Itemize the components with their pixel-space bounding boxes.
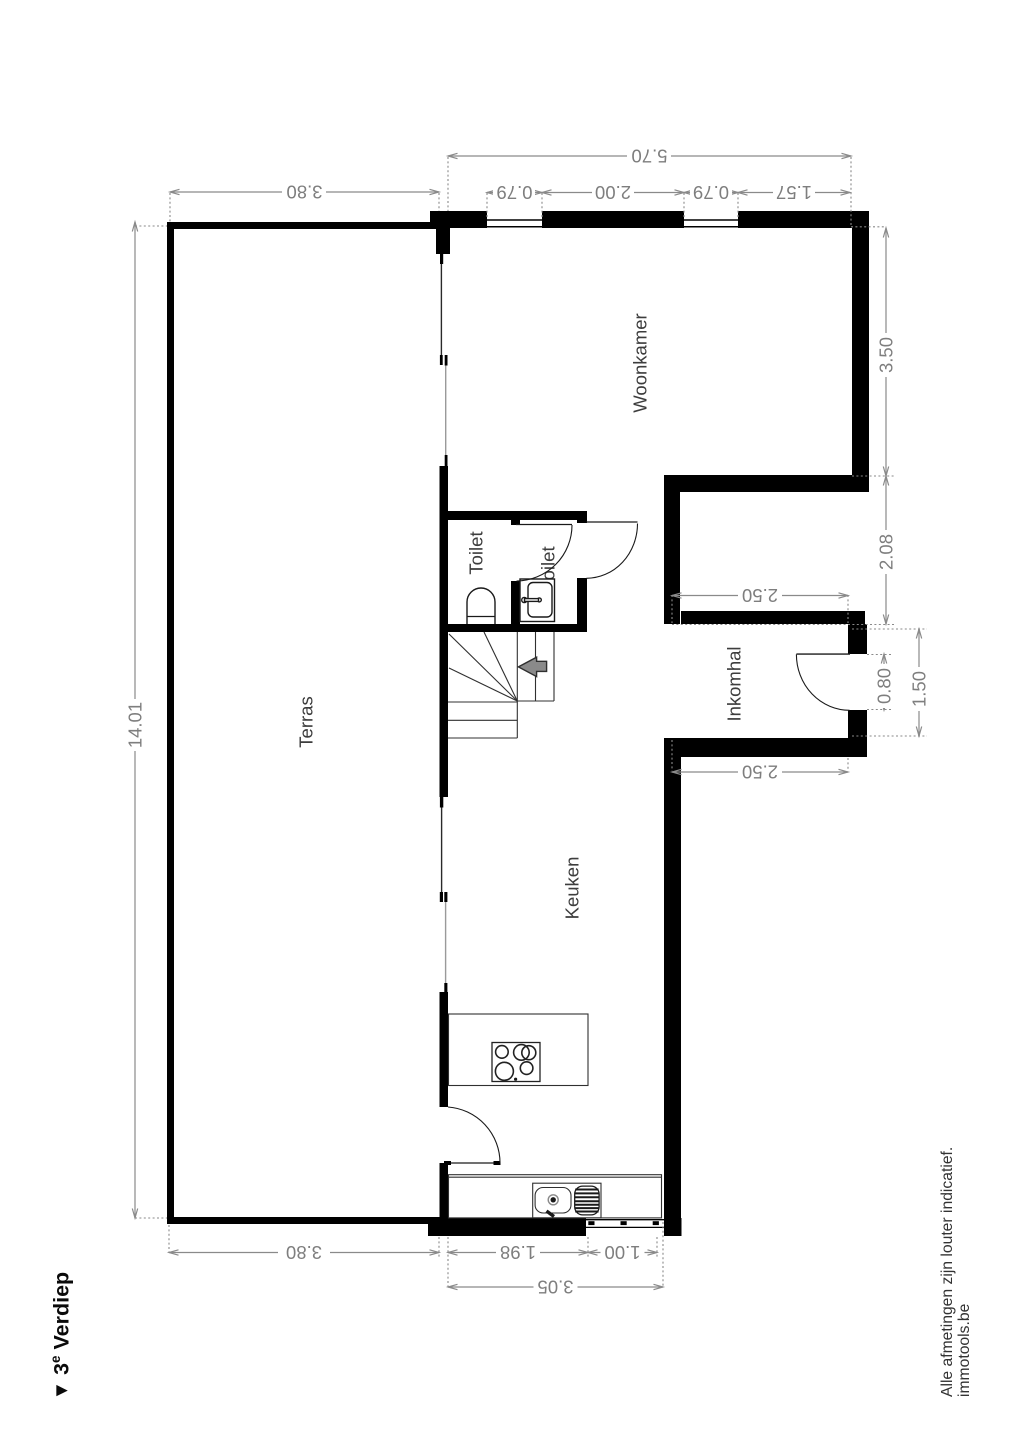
svg-text:0.80: 0.80	[874, 668, 895, 704]
svg-text:1.00: 1.00	[604, 1242, 640, 1263]
svg-text:1.50: 1.50	[909, 671, 930, 707]
svg-text:3.50: 3.50	[876, 337, 897, 373]
svg-text:Alle afmetingen zijn louter in: Alle afmetingen zijn louter indicatief.	[939, 1147, 956, 1397]
svg-text:Terras: Terras	[296, 696, 317, 747]
svg-text:immotools.be: immotools.be	[956, 1303, 973, 1397]
svg-text:2.50: 2.50	[742, 762, 778, 783]
svg-text:2.50: 2.50	[742, 585, 778, 606]
svg-text:0.79: 0.79	[496, 182, 532, 203]
svg-text:3.80: 3.80	[286, 182, 322, 203]
svg-text:Woonkamer: Woonkamer	[630, 313, 651, 412]
svg-text:2.08: 2.08	[876, 534, 897, 570]
svg-text:2.00: 2.00	[595, 182, 631, 203]
svg-text:Keuken: Keuken	[562, 857, 583, 920]
svg-text:14.01: 14.01	[125, 702, 146, 748]
svg-text:0.79: 0.79	[693, 182, 729, 203]
svg-text:5.70: 5.70	[631, 146, 667, 167]
svg-text:▼ 3e Verdiep: ▼ 3e Verdiep	[48, 1272, 74, 1400]
svg-text:1.57: 1.57	[776, 182, 812, 203]
svg-text:Inkomhal: Inkomhal	[724, 646, 745, 721]
svg-text:Toilet: Toilet	[466, 531, 487, 574]
svg-text:3.80: 3.80	[286, 1242, 322, 1263]
svg-text:3.05: 3.05	[537, 1277, 573, 1298]
svg-text:1.98: 1.98	[500, 1242, 536, 1263]
